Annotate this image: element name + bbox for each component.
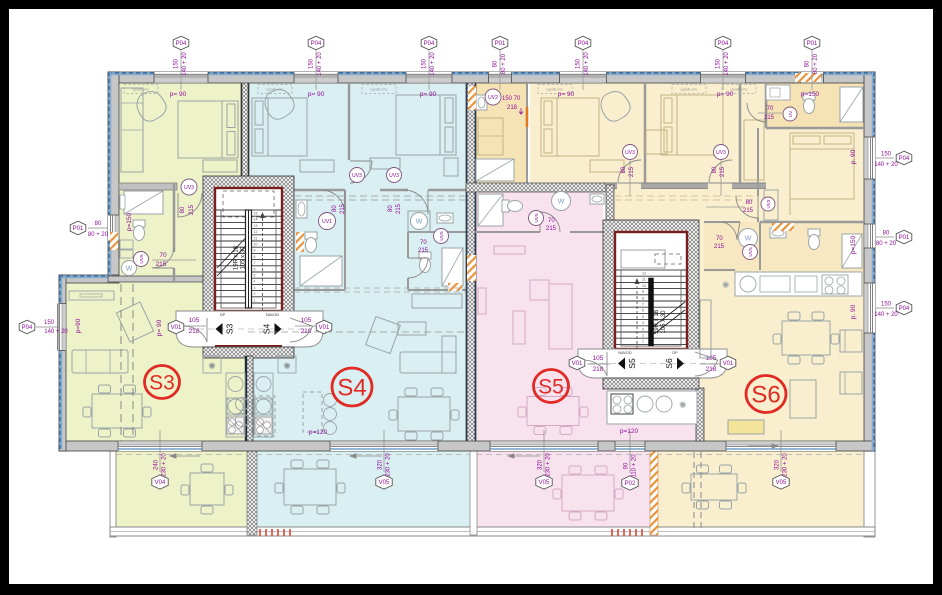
svg-text:P01: P01	[73, 226, 84, 232]
svg-text:P02: P02	[625, 481, 636, 487]
svg-text:215: 215	[720, 166, 726, 177]
svg-text:4: 4	[254, 280, 256, 284]
svg-text:p= 90: p= 90	[156, 319, 163, 336]
svg-text:7: 7	[642, 303, 644, 307]
svg-text:5: 5	[254, 274, 256, 278]
svg-text:UV: UV	[788, 110, 794, 117]
svg-text:150: 150	[44, 320, 55, 326]
svg-text:UV5: UV5	[748, 247, 754, 257]
svg-text:p= 90: p= 90	[717, 91, 734, 98]
svg-text:105: 105	[593, 355, 604, 362]
svg-text:105: 105	[189, 317, 200, 324]
svg-text:80 + 20: 80 + 20	[501, 53, 507, 74]
svg-text:215: 215	[764, 115, 775, 121]
svg-text:p. 90: p. 90	[850, 149, 857, 164]
svg-text:ugradb.orm.: ugradb.orm.	[370, 88, 387, 92]
svg-text:14: 14	[254, 218, 258, 222]
svg-text:P01: P01	[899, 235, 910, 241]
svg-text:✺: ✺	[283, 361, 291, 371]
svg-text:8: 8	[642, 296, 644, 300]
svg-text:W: W	[558, 199, 565, 206]
svg-text:p=150: p=150	[801, 91, 820, 98]
svg-text:13: 13	[254, 224, 258, 228]
svg-text:P04: P04	[578, 41, 589, 47]
svg-text:V05: V05	[776, 480, 787, 486]
svg-text:230 + 20: 230 + 20	[546, 453, 552, 477]
svg-text:19R x 18: 19R x 18	[654, 309, 660, 334]
svg-text:70: 70	[767, 106, 774, 112]
svg-text:4: 4	[642, 321, 644, 325]
svg-text:1: 1	[642, 340, 644, 344]
svg-text:150: 150	[422, 58, 428, 69]
svg-text:215: 215	[340, 203, 346, 214]
svg-text:10: 10	[642, 284, 646, 288]
svg-text:UV5: UV5	[534, 213, 540, 223]
svg-text:140 + 20: 140 + 20	[874, 312, 898, 318]
svg-text:11: 11	[254, 236, 258, 240]
svg-text:140 + 20: 140 + 20	[724, 52, 730, 76]
svg-text:80: 80	[95, 221, 102, 227]
svg-text:3: 3	[642, 327, 644, 331]
svg-text:p=150: p=150	[850, 235, 857, 254]
svg-text:10: 10	[254, 243, 258, 247]
svg-text:12: 12	[254, 230, 258, 234]
svg-text:UV3: UV3	[625, 150, 635, 156]
svg-text:218: 218	[189, 328, 200, 335]
svg-text:6: 6	[642, 309, 644, 313]
svg-text:P04: P04	[22, 325, 33, 331]
svg-text:218: 218	[507, 105, 518, 111]
svg-text:DP: DP	[672, 351, 678, 355]
svg-text:UV2: UV2	[488, 95, 498, 101]
svg-text:150: 150	[309, 58, 315, 69]
svg-text:150: 150	[716, 58, 722, 69]
svg-text:320: 320	[775, 459, 781, 470]
svg-text:UV3: UV3	[389, 173, 399, 179]
svg-text:S3: S3	[149, 372, 175, 395]
svg-text:W: W	[416, 219, 423, 226]
svg-text:5: 5	[642, 315, 644, 319]
svg-text:✺: ✺	[722, 280, 730, 290]
svg-text:P01: P01	[495, 41, 506, 47]
svg-text:80 + 20: 80 + 20	[88, 232, 109, 238]
svg-text:NAVOD: NAVOD	[618, 351, 631, 355]
svg-text:80: 80	[493, 60, 499, 67]
svg-text:218: 218	[593, 366, 604, 373]
svg-text:150: 150	[576, 58, 582, 69]
svg-text:UV1: UV1	[322, 219, 332, 225]
svg-text:110 + 20: 110 + 20	[632, 454, 638, 478]
svg-text:UV3: UV3	[766, 199, 771, 208]
svg-text:✺: ✺	[679, 400, 687, 410]
svg-text:150 70: 150 70	[502, 96, 521, 102]
svg-text:V01: V01	[319, 325, 330, 331]
svg-text:p= 90: p= 90	[308, 91, 325, 98]
svg-text:15: 15	[254, 212, 258, 216]
svg-text:215: 215	[546, 226, 557, 232]
svg-text:140 + 20: 140 + 20	[874, 162, 898, 168]
svg-text:80 + 20: 80 + 20	[876, 241, 897, 247]
svg-text:S3: S3	[225, 324, 235, 335]
svg-text:S6: S6	[751, 382, 780, 409]
svg-text:140 + 20: 140 + 20	[430, 52, 436, 76]
svg-text:P04: P04	[899, 306, 910, 312]
svg-text:P04: P04	[718, 41, 729, 47]
svg-text:7: 7	[254, 261, 256, 265]
svg-text:9: 9	[254, 249, 256, 253]
svg-text:W: W	[126, 266, 133, 273]
svg-text:80: 80	[746, 200, 753, 206]
svg-text:230 + 20: 230 + 20	[783, 453, 789, 477]
svg-text:70: 70	[159, 252, 167, 259]
svg-text:6: 6	[254, 267, 256, 271]
svg-text:105 x 30: 105 x 30	[661, 310, 667, 334]
svg-text:P04: P04	[424, 41, 435, 47]
svg-text:DP: DP	[220, 313, 226, 317]
svg-text:140 + 20: 140 + 20	[317, 52, 323, 76]
svg-text:p= 90: p= 90	[420, 91, 437, 98]
svg-text:105: 105	[301, 317, 312, 324]
svg-text:80: 80	[180, 206, 186, 213]
svg-text:215: 215	[418, 248, 429, 254]
svg-text:230 + 20: 230 + 20	[162, 453, 168, 477]
svg-text:80: 80	[712, 166, 718, 173]
svg-text:S5: S5	[538, 376, 564, 399]
svg-text:215: 215	[629, 166, 635, 177]
svg-text:V01: V01	[572, 361, 583, 367]
svg-text:UV3: UV3	[352, 173, 362, 179]
svg-text:UV5: UV5	[439, 231, 445, 241]
svg-text:W: W	[745, 236, 752, 243]
svg-text:UV3: UV3	[716, 150, 726, 156]
svg-text:230 + 20: 230 + 20	[386, 453, 392, 477]
svg-text:9: 9	[642, 290, 644, 294]
svg-text:80: 80	[805, 60, 811, 67]
svg-text:3: 3	[254, 286, 256, 290]
svg-text:P04: P04	[176, 41, 187, 47]
svg-text:S4: S4	[262, 324, 272, 335]
svg-text:UV5: UV5	[139, 254, 145, 264]
svg-text:150: 150	[881, 152, 892, 158]
svg-text:V04: V04	[155, 480, 166, 486]
svg-text:215: 215	[396, 203, 402, 214]
svg-text:11: 11	[642, 278, 646, 282]
svg-text:80: 80	[388, 205, 394, 212]
svg-text:V01: V01	[171, 325, 182, 331]
svg-text:80: 80	[883, 231, 890, 237]
svg-text:V05: V05	[379, 480, 390, 486]
svg-text:70: 70	[420, 240, 427, 246]
svg-text:19R x 18: 19R x 18	[234, 245, 240, 270]
svg-text:215: 215	[743, 208, 754, 214]
svg-text:p= 90: p= 90	[170, 91, 187, 98]
svg-text:215: 215	[189, 204, 195, 215]
svg-text:140 + 20: 140 + 20	[182, 52, 188, 76]
svg-text:90: 90	[624, 462, 630, 469]
svg-text:2: 2	[254, 292, 256, 296]
svg-text:S6: S6	[664, 358, 674, 369]
svg-text:70: 70	[548, 218, 555, 224]
svg-text:S4: S4	[337, 375, 366, 402]
svg-text:P04: P04	[311, 41, 322, 47]
svg-text:UV3: UV3	[184, 185, 194, 191]
svg-text:80: 80	[621, 166, 627, 173]
svg-text:V01: V01	[723, 361, 734, 367]
svg-text:320: 320	[378, 459, 384, 470]
svg-text:p=90: p=90	[75, 318, 82, 333]
svg-text:150: 150	[881, 302, 892, 308]
svg-text:2: 2	[642, 334, 644, 338]
svg-text:p=120: p=120	[309, 429, 328, 436]
svg-text:✺: ✺	[208, 361, 216, 371]
svg-text:p=150: p=150	[126, 212, 133, 231]
svg-text:S5: S5	[627, 358, 637, 369]
svg-text:ugradb.orm.: ugradb.orm.	[680, 88, 697, 92]
svg-text:p. 90: p. 90	[850, 304, 857, 319]
svg-text:P04: P04	[899, 156, 910, 162]
svg-text:320: 320	[538, 459, 544, 470]
svg-text:150: 150	[174, 58, 180, 69]
svg-text:V05: V05	[539, 480, 550, 486]
svg-text:p=120: p=120	[620, 428, 639, 435]
svg-text:NAVOD: NAVOD	[266, 313, 279, 317]
svg-text:70: 70	[716, 236, 723, 242]
svg-text:80: 80	[332, 205, 338, 212]
svg-text:140 + 20: 140 + 20	[44, 329, 68, 335]
svg-text:215: 215	[714, 244, 725, 250]
svg-text:P01: P01	[807, 41, 818, 47]
svg-text:140 + 20: 140 + 20	[584, 52, 590, 76]
svg-text:240: 240	[154, 459, 160, 470]
svg-text:1: 1	[254, 298, 256, 302]
svg-text:80 + 20: 80 + 20	[813, 53, 819, 74]
svg-text:8: 8	[254, 255, 256, 259]
svg-text:12: 12	[642, 272, 646, 276]
svg-text:p= 90: p= 90	[558, 91, 575, 98]
svg-text:105 x 30: 105 x 30	[241, 246, 247, 270]
svg-text:215: 215	[156, 261, 167, 268]
